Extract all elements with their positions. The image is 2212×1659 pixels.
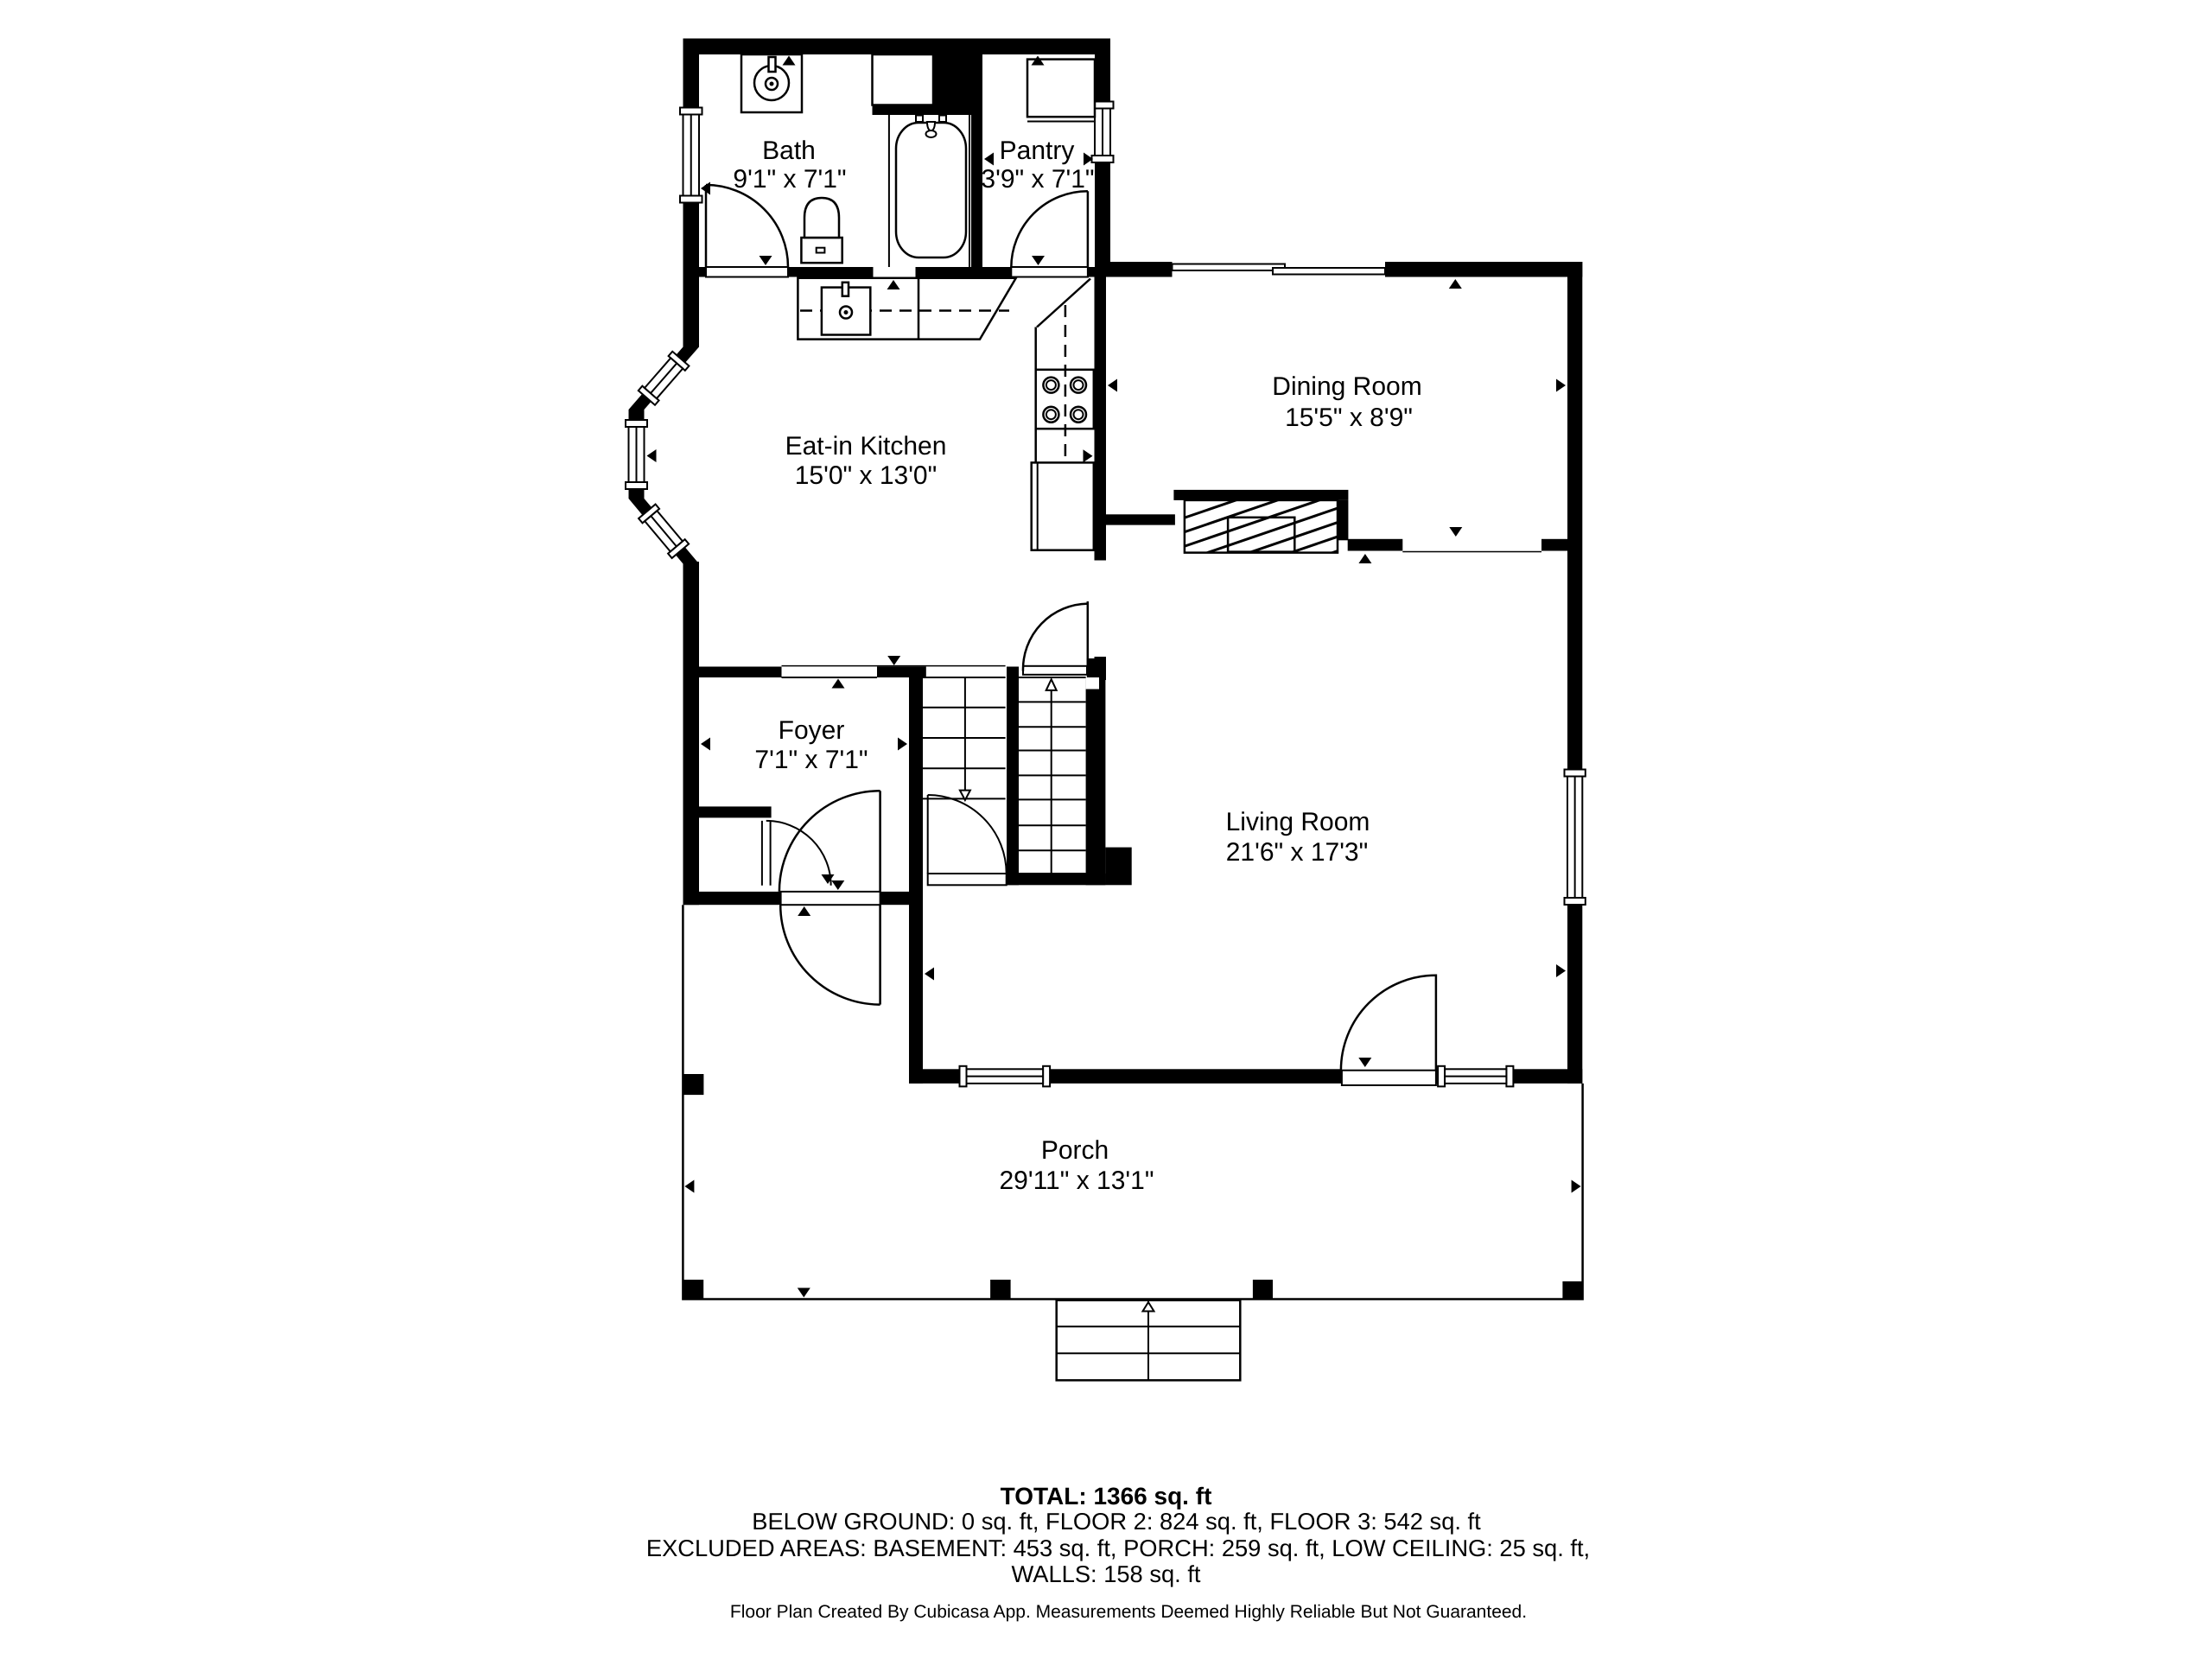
svg-text:3'9" x 7'1": 3'9" x 7'1" xyxy=(981,165,1094,194)
svg-text:9'1" x 7'1": 9'1" x 7'1" xyxy=(733,165,846,194)
svg-text:BELOW GROUND: 0 sq. ft, FLOOR: BELOW GROUND: 0 sq. ft, FLOOR 2: 824 sq.… xyxy=(752,1508,1481,1535)
svg-text:Pantry: Pantry xyxy=(1000,137,1075,165)
svg-text:EXCLUDED AREAS: BASEMENT: 453: EXCLUDED AREAS: BASEMENT: 453 sq. ft, PO… xyxy=(646,1535,1590,1561)
svg-text:Porch: Porch xyxy=(1041,1136,1109,1165)
svg-text:Floor Plan Created By Cubicasa: Floor Plan Created By Cubicasa App. Meas… xyxy=(730,1602,1527,1622)
svg-text:Bath: Bath xyxy=(762,137,816,165)
svg-text:7'1" x 7'1": 7'1" x 7'1" xyxy=(754,746,868,774)
svg-text:15'0" x 13'0": 15'0" x 13'0" xyxy=(795,461,938,490)
svg-text:Dining Room: Dining Room xyxy=(1272,372,1421,401)
svg-text:Living Room: Living Room xyxy=(1226,808,1370,836)
svg-text:15'5" x 8'9": 15'5" x 8'9" xyxy=(1285,404,1413,432)
svg-text:Eat-in Kitchen: Eat-in Kitchen xyxy=(785,432,947,461)
svg-text:21'6" x 17'3": 21'6" x 17'3" xyxy=(1226,838,1369,867)
svg-text:WALLS: 158 sq. ft: WALLS: 158 sq. ft xyxy=(1012,1560,1201,1587)
svg-text:29'11" x 13'1": 29'11" x 13'1" xyxy=(1000,1166,1154,1195)
svg-text:Foyer: Foyer xyxy=(779,716,845,745)
svg-text:TOTAL: 1366 sq. ft: TOTAL: 1366 sq. ft xyxy=(1001,1483,1212,1510)
